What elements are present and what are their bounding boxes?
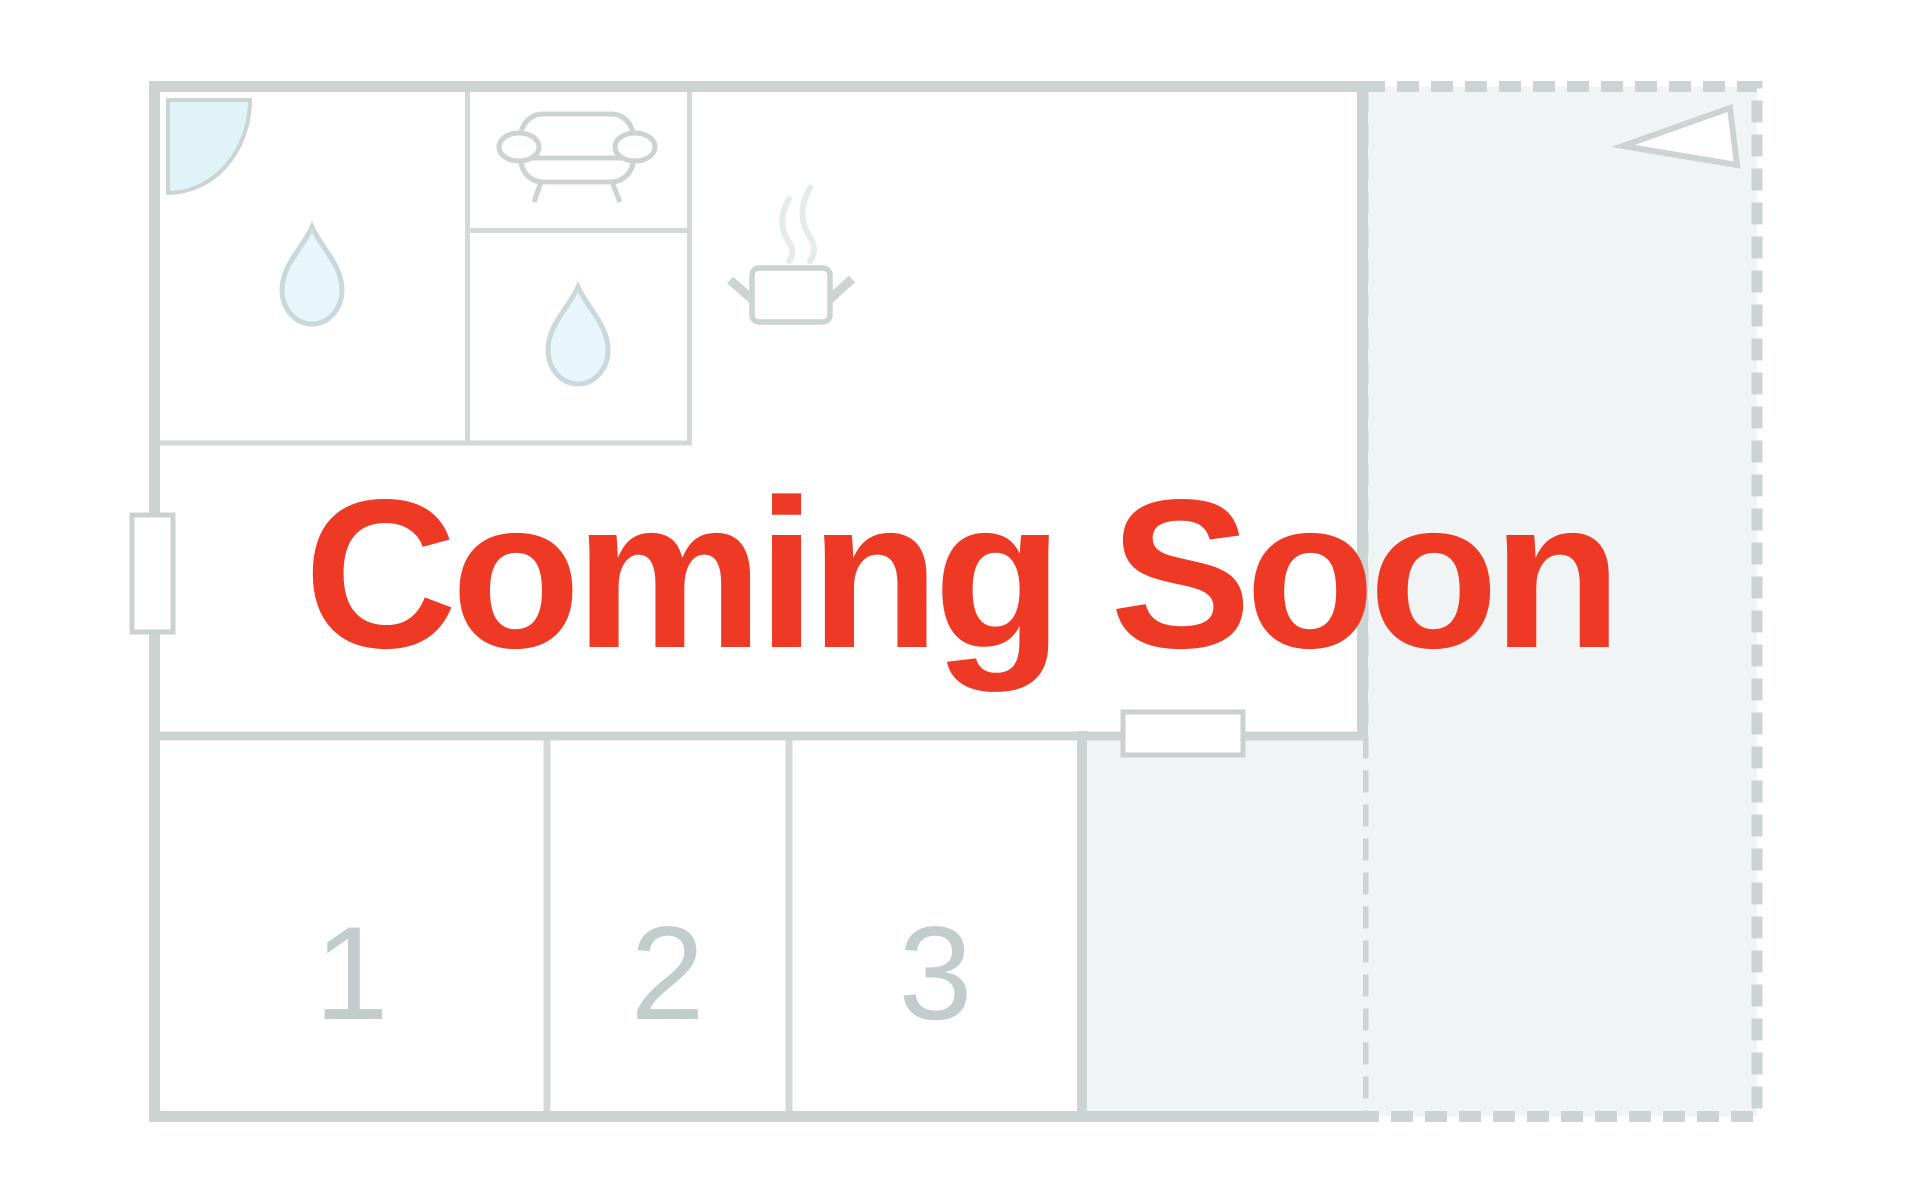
room-1-number: 1 [160, 908, 543, 1041]
bottom-wall-window-icon [1123, 712, 1243, 755]
water-drop-shape [282, 227, 342, 324]
room-2-number: 2 [551, 908, 784, 1041]
sofa-armrest-left [499, 133, 539, 161]
door-swing-icon [168, 100, 250, 193]
steam-icon-right [803, 188, 815, 261]
water-drop-shape [548, 287, 608, 384]
floor-plan: Coming Soon 1 2 3 [0, 0, 1920, 1200]
cooking-pot-icon [730, 188, 852, 322]
pot-body [752, 268, 830, 322]
room-3-number: 3 [794, 908, 1077, 1041]
water-drop-icon-1 [282, 227, 342, 324]
water-drop-icon-2 [548, 287, 608, 384]
sofa-leg-left [534, 182, 541, 202]
steam-icon-left [782, 199, 792, 261]
sofa-icon [499, 114, 655, 202]
pot-handle-right [830, 279, 852, 299]
coming-soon-text: Coming Soon [0, 468, 1920, 680]
sofa-leg-right [612, 182, 620, 202]
gray-room-area [1082, 736, 1363, 1113]
sofa-armrest-right [615, 133, 655, 161]
